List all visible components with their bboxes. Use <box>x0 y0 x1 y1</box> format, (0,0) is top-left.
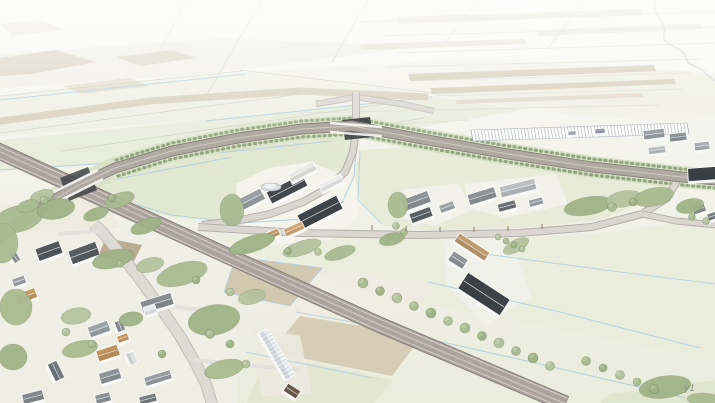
tree-highlight <box>504 238 507 241</box>
tree-highlight <box>159 351 163 355</box>
tree-highlight <box>393 223 397 227</box>
building <box>567 131 577 139</box>
vegetation-patch <box>0 289 32 325</box>
tree-highlight <box>512 347 517 352</box>
tree-highlight <box>582 357 587 362</box>
tree-highlight <box>634 379 638 383</box>
vegetation-patch <box>388 192 408 218</box>
tree-highlight <box>444 317 449 322</box>
tree-highlight <box>427 309 432 314</box>
tree-highlight <box>206 330 211 335</box>
silo-tank-top <box>264 184 276 189</box>
tree-highlight <box>109 195 113 199</box>
tree-highlight <box>193 277 197 281</box>
building <box>594 128 606 137</box>
tree-highlight <box>315 249 319 253</box>
tree-highlight <box>546 362 551 367</box>
tree-highlight <box>608 203 613 208</box>
tree-highlight <box>616 371 621 376</box>
tree-highlight <box>227 341 231 345</box>
tree-highlight <box>63 329 67 333</box>
vegetation-patch <box>0 344 27 370</box>
building <box>687 166 715 184</box>
tree-highlight <box>689 214 693 218</box>
tree-highlight <box>393 294 398 299</box>
tree-highlight <box>243 361 247 365</box>
tree-highlight <box>650 385 655 390</box>
tree-highlight <box>89 341 93 345</box>
vegetation-patch <box>220 194 244 226</box>
tree-highlight <box>529 354 534 359</box>
tree-highlight <box>461 324 466 329</box>
building <box>668 132 687 145</box>
tree-highlight <box>410 302 415 307</box>
tree-highlight <box>376 287 381 292</box>
tree-highlight <box>285 248 289 252</box>
tree-highlight <box>227 289 231 293</box>
tree-highlight <box>117 261 121 265</box>
tree-highlight <box>495 339 500 344</box>
tree-highlight <box>359 279 364 284</box>
tree-highlight <box>512 242 515 245</box>
tree-highlight <box>520 246 523 249</box>
building <box>693 141 710 154</box>
tree-highlight <box>478 332 483 337</box>
tree-highlight <box>600 365 604 369</box>
tree-highlight <box>630 199 634 203</box>
tree-highlight <box>496 234 499 237</box>
aerial-plan-visualization: y1 <box>0 0 715 403</box>
landscape-scene <box>0 0 715 403</box>
tree-highlight <box>703 218 707 222</box>
tree-highlight <box>401 229 405 233</box>
tree-highlight <box>41 197 45 201</box>
